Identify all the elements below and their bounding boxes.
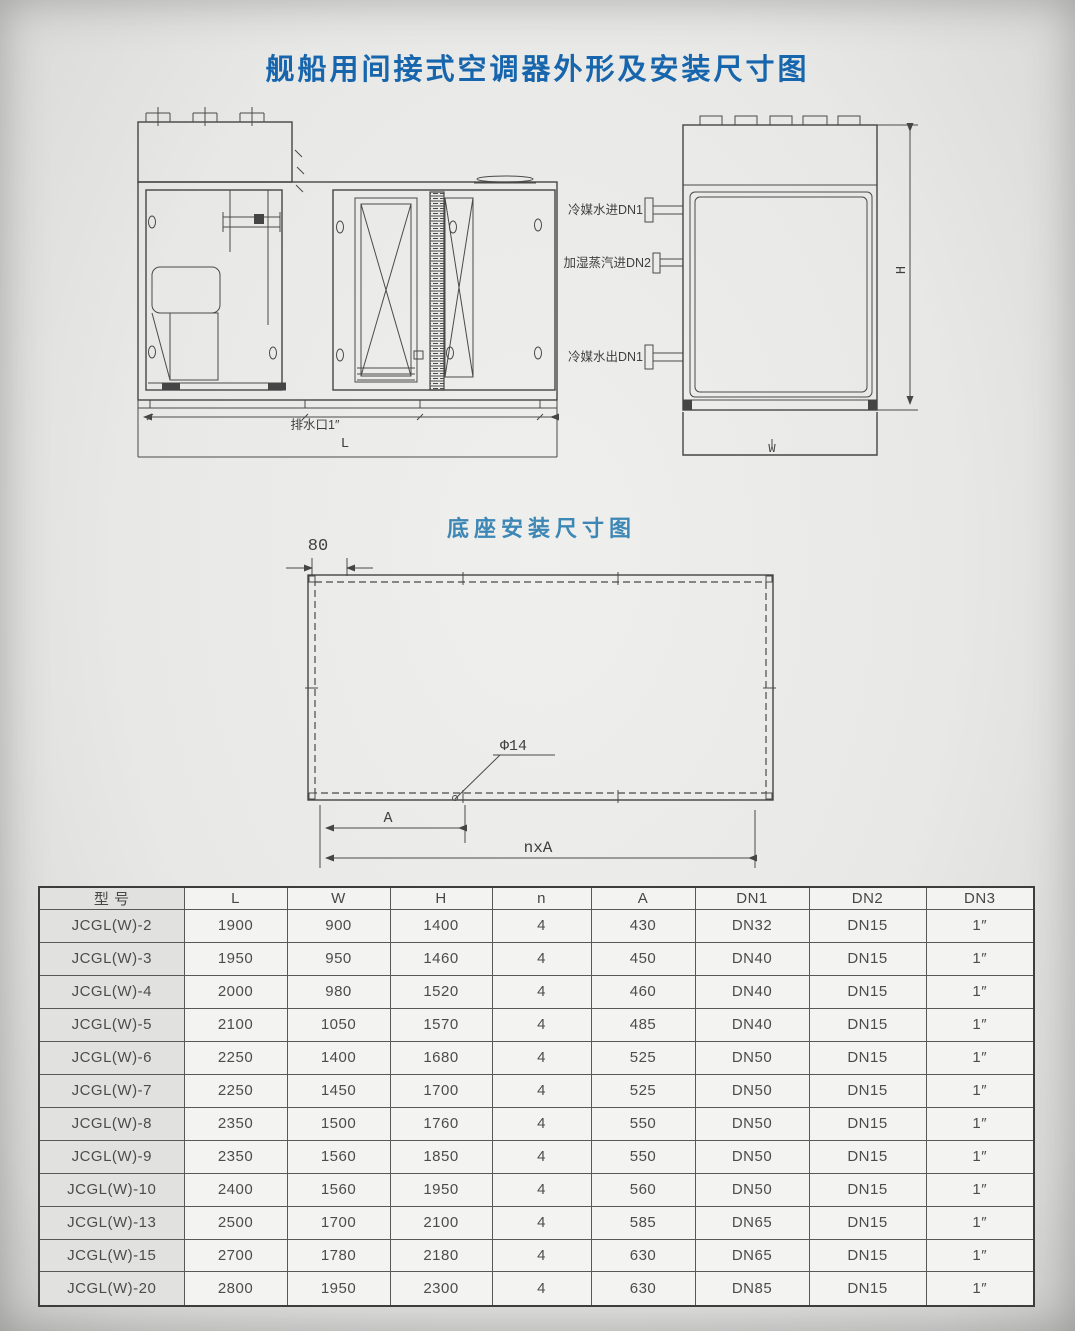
pitch-dimension: A [320,805,465,868]
col-header-DN2: DN2 [809,887,926,910]
cell-n: 4 [492,1206,591,1239]
cell-DN1: DN40 [695,1008,809,1041]
cell-n: 4 [492,942,591,975]
cell-DN3: 1″ [926,1272,1034,1306]
cell-DN2: DN15 [809,975,926,1008]
cell-W: 1700 [287,1206,390,1239]
cell-L: 2700 [184,1239,287,1272]
col-header-L: L [184,887,287,910]
base-frame [305,572,776,803]
cell-A: 550 [591,1140,695,1173]
side-top-stubs [700,116,860,125]
width-dim-label: W [768,442,776,456]
x-brace [361,204,411,376]
cell-DN1: DN65 [695,1239,809,1272]
cell-A: 630 [591,1239,695,1272]
col-header-n: n [492,887,591,910]
table-row: JCGL(W)-9 2350 1560 1850 4 550 DN50 DN15… [39,1140,1034,1173]
x-brace [445,198,473,377]
model-cell: JCGL(W)-2 [39,910,184,943]
span-dim-label: nxA [524,839,553,857]
front-view-drawing: 排水口1″ L [118,95,583,467]
cell-DN3: 1″ [926,1239,1034,1272]
cell-DN3: 1″ [926,1206,1034,1239]
coil-section [333,176,555,390]
coil-strip [430,192,444,390]
cell-DN2: DN15 [809,942,926,975]
hole-callout: Φ14 [453,738,556,801]
cell-n: 4 [492,1008,591,1041]
page-title: 舰船用间接式空调器外形及安装尺寸图 [0,46,1075,88]
base-installation-diagram: 80 Φ14 A n [268,528,803,873]
length-dim-label: L [341,436,349,452]
col-header-H: H [390,887,492,910]
cell-W: 1500 [287,1107,390,1140]
cell-W: 980 [287,975,390,1008]
cell-W: 1560 [287,1140,390,1173]
model-cell: JCGL(W)-7 [39,1074,184,1107]
cell-n: 4 [492,1272,591,1306]
cell-A: 430 [591,910,695,943]
col-header-DN3: DN3 [926,887,1034,910]
cell-W: 1400 [287,1041,390,1074]
cell-W: 950 [287,942,390,975]
cell-L: 2000 [184,975,287,1008]
cell-DN3: 1″ [926,1107,1034,1140]
door-handle [270,347,277,359]
cell-DN2: DN15 [809,1041,926,1074]
model-cell: JCGL(W)-13 [39,1206,184,1239]
hole-dim-label: Φ14 [500,738,527,755]
cell-n: 4 [492,910,591,943]
cell-H: 1460 [390,942,492,975]
model-cell: JCGL(W)-9 [39,1140,184,1173]
table-row: JCGL(W)-7 2250 1450 1700 4 525 DN50 DN15… [39,1074,1034,1107]
cell-DN3: 1″ [926,1173,1034,1206]
cell-L: 2350 [184,1140,287,1173]
model-cell: JCGL(W)-6 [39,1041,184,1074]
table-row: JCGL(W)-5 2100 1050 1570 4 485 DN40 DN15… [39,1008,1034,1041]
col-header-DN1: DN1 [695,887,809,910]
cell-DN2: DN15 [809,1173,926,1206]
cell-DN3: 1″ [926,1074,1034,1107]
cell-L: 1950 [184,942,287,975]
cell-W: 1560 [287,1173,390,1206]
cell-A: 560 [591,1173,695,1206]
cell-DN2: DN15 [809,1008,926,1041]
cell-H: 1400 [390,910,492,943]
cell-L: 2400 [184,1173,287,1206]
cell-n: 4 [492,1239,591,1272]
model-cell: JCGL(W)-3 [39,942,184,975]
cell-DN1: DN85 [695,1272,809,1306]
table-row: JCGL(W)-13 2500 1700 2100 4 585 DN65 DN1… [39,1206,1034,1239]
cell-A: 630 [591,1272,695,1306]
scan-marks [295,150,304,192]
cell-DN3: 1″ [926,942,1034,975]
cell-DN2: DN15 [809,1272,926,1306]
table-row: JCGL(W)-20 2800 1950 2300 4 630 DN85 DN1… [39,1272,1034,1306]
cell-DN1: DN50 [695,1140,809,1173]
cell-L: 2500 [184,1206,287,1239]
cell-DN2: DN15 [809,910,926,943]
side-main-body [683,125,877,410]
scanned-document-page: 舰船用间接式空调器外形及安装尺寸图 [0,0,1075,1331]
front-base-dimension: 排水口1″ L [138,400,557,457]
cell-W: 1050 [287,1008,390,1041]
door-handle [149,346,156,358]
chilled-water-outlet-label: 冷媒水出DN1 [568,350,643,364]
edge-dim-label: 80 [308,537,328,556]
table-row: JCGL(W)-4 2000 980 1520 4 460 DN40 DN15 … [39,975,1034,1008]
cell-W: 1780 [287,1239,390,1272]
col-header-W: W [287,887,390,910]
spec-table: 型 号 L W H n A DN1 DN2 DN3 JCGL(W)-2 1900… [38,886,1035,1307]
col-header-model: 型 号 [39,887,184,910]
side-base: W [683,400,877,456]
drain-port-label: 排水口1″ [291,418,340,432]
cell-DN3: 1″ [926,910,1034,943]
pipe-flanges [645,198,683,369]
model-cell: JCGL(W)-10 [39,1173,184,1206]
table-row: JCGL(W)-2 1900 900 1400 4 430 DN32 DN15 … [39,910,1034,943]
table-header-row: 型 号 L W H n A DN1 DN2 DN3 [39,887,1034,910]
cell-n: 4 [492,1041,591,1074]
fan-section [146,190,286,390]
cell-DN1: DN65 [695,1206,809,1239]
front-main-body [138,182,557,400]
front-top-box [138,122,292,182]
cell-W: 1950 [287,1272,390,1306]
cell-DN3: 1″ [926,1041,1034,1074]
cell-A: 485 [591,1008,695,1041]
cell-L: 2100 [184,1008,287,1041]
table-row: JCGL(W)-8 2350 1500 1760 4 550 DN50 DN15… [39,1107,1034,1140]
cell-H: 2300 [390,1272,492,1306]
cell-n: 4 [492,1173,591,1206]
model-cell: JCGL(W)-4 [39,975,184,1008]
cell-L: 2250 [184,1041,287,1074]
model-cell: JCGL(W)-15 [39,1239,184,1272]
cell-DN1: DN50 [695,1173,809,1206]
chilled-water-inlet-label: 冷媒水进DN1 [568,203,643,217]
edge-dimension-80: 80 [286,537,373,576]
table-row: JCGL(W)-6 2250 1400 1680 4 525 DN50 DN15… [39,1041,1034,1074]
cell-A: 525 [591,1041,695,1074]
cell-DN2: DN15 [809,1074,926,1107]
cell-A: 460 [591,975,695,1008]
cell-L: 2250 [184,1074,287,1107]
cell-DN3: 1″ [926,1008,1034,1041]
cell-H: 2100 [390,1206,492,1239]
cell-A: 550 [591,1107,695,1140]
cell-n: 4 [492,975,591,1008]
cell-H: 1520 [390,975,492,1008]
side-view-drawing: 冷媒水进DN1 加湿蒸汽进DN2 冷媒水出DN1 W H [550,95,980,467]
cell-H: 1950 [390,1173,492,1206]
cell-DN2: DN15 [809,1206,926,1239]
cell-H: 1680 [390,1041,492,1074]
col-header-A: A [591,887,695,910]
cell-DN3: 1″ [926,975,1034,1008]
table-row: JCGL(W)-15 2700 1780 2180 4 630 DN65 DN1… [39,1239,1034,1272]
cell-n: 4 [492,1107,591,1140]
table-row: JCGL(W)-10 2400 1560 1950 4 560 DN50 DN1… [39,1173,1034,1206]
model-cell: JCGL(W)-20 [39,1272,184,1306]
cell-A: 525 [591,1074,695,1107]
cell-L: 1900 [184,910,287,943]
cell-DN1: DN50 [695,1107,809,1140]
model-cell: JCGL(W)-8 [39,1107,184,1140]
cell-H: 1570 [390,1008,492,1041]
cell-H: 1700 [390,1074,492,1107]
top-pipe-stubs [146,107,264,126]
cell-H: 1850 [390,1140,492,1173]
cell-W: 900 [287,910,390,943]
cell-n: 4 [492,1140,591,1173]
cell-A: 450 [591,942,695,975]
model-cell: JCGL(W)-5 [39,1008,184,1041]
cell-DN1: DN32 [695,910,809,943]
side-panel [690,192,872,397]
cell-W: 1450 [287,1074,390,1107]
cell-H: 2180 [390,1239,492,1272]
cell-DN1: DN50 [695,1074,809,1107]
cell-L: 2350 [184,1107,287,1140]
cell-n: 4 [492,1074,591,1107]
cell-DN2: DN15 [809,1140,926,1173]
height-dimension: H [877,125,918,410]
door-handle [149,216,156,228]
cell-DN1: DN50 [695,1041,809,1074]
pitch-dim-label: A [383,810,392,827]
table-row: JCGL(W)-3 1950 950 1460 4 450 DN40 DN15 … [39,942,1034,975]
cell-H: 1760 [390,1107,492,1140]
cell-DN2: DN15 [809,1107,926,1140]
cell-DN2: DN15 [809,1239,926,1272]
cell-A: 585 [591,1206,695,1239]
cell-DN1: DN40 [695,975,809,1008]
steam-inlet-label: 加湿蒸汽进DN2 [563,255,651,270]
cell-DN1: DN40 [695,942,809,975]
cell-L: 2800 [184,1272,287,1306]
height-dim-label: H [894,266,910,274]
vent-cap [477,176,533,182]
cell-DN3: 1″ [926,1140,1034,1173]
